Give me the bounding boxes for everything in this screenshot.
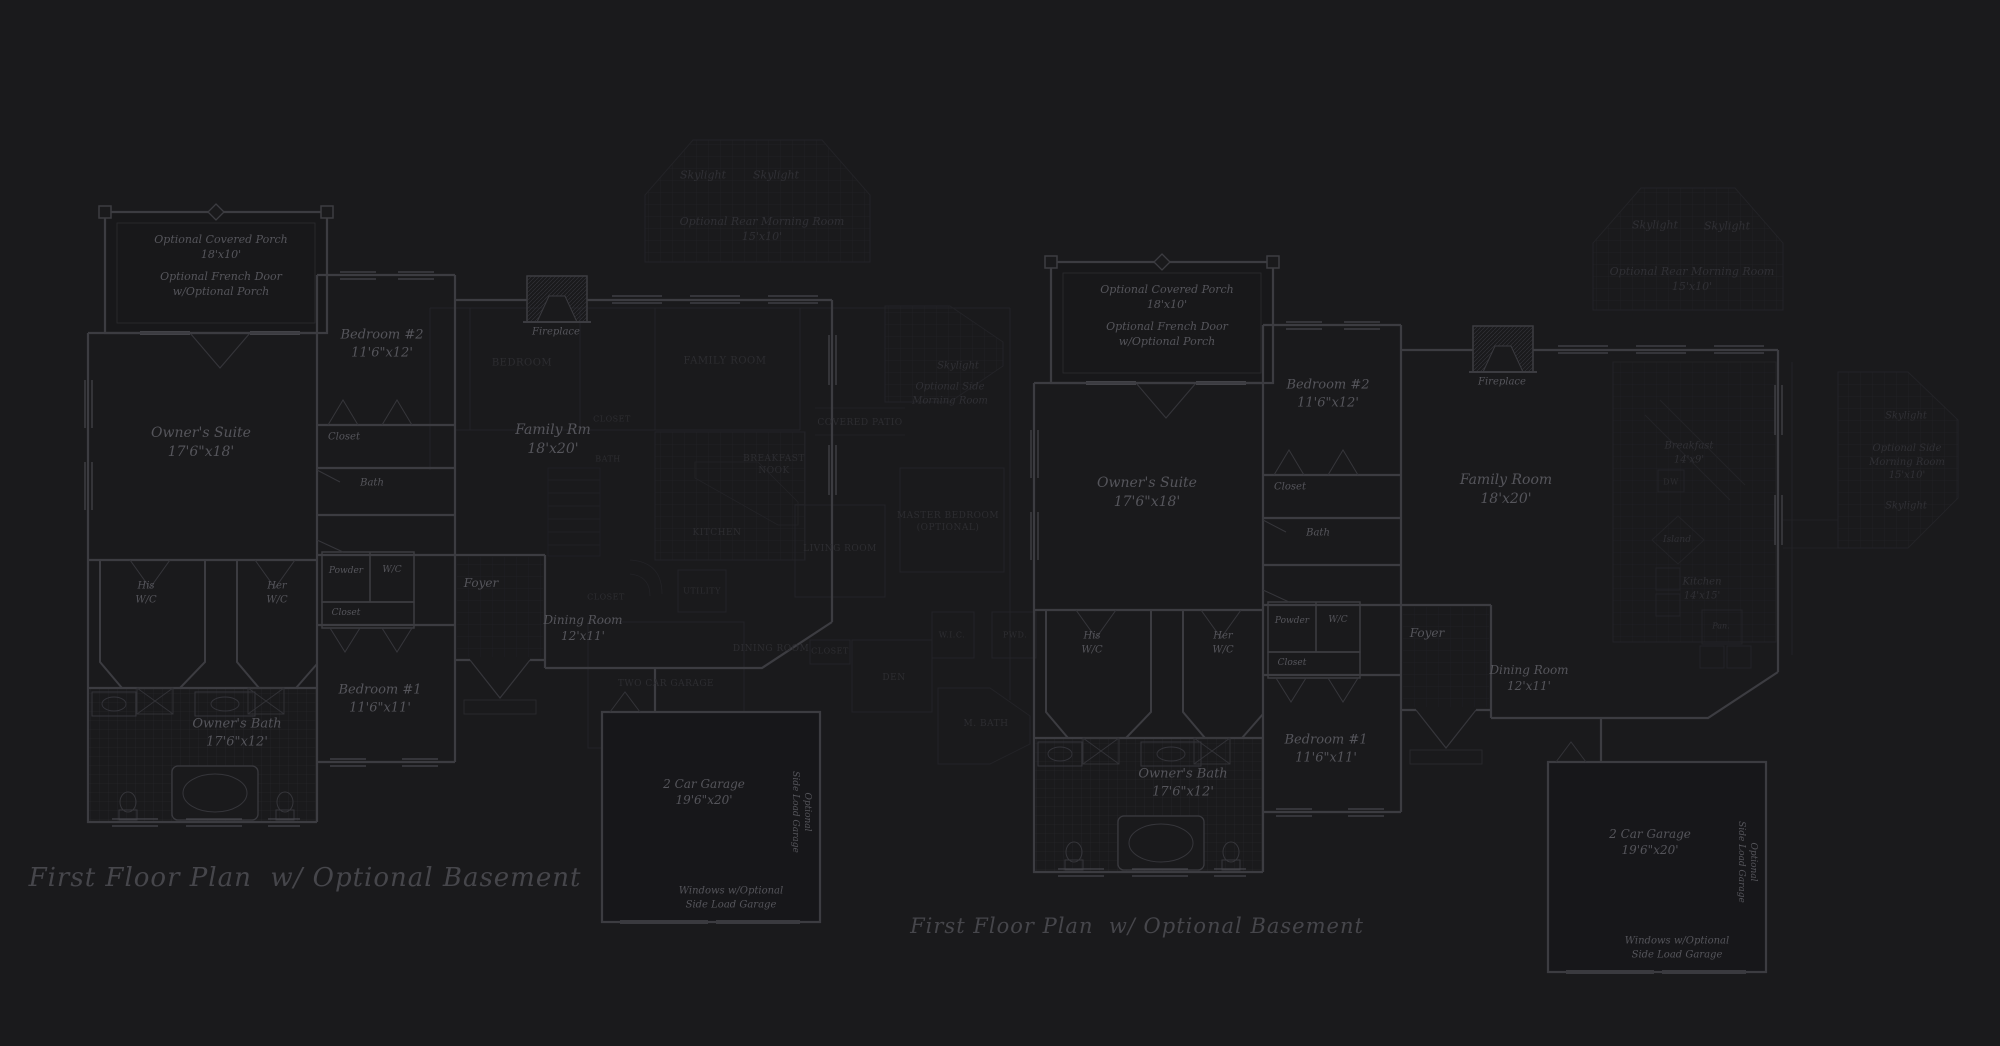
left-overlay-linework xyxy=(430,140,1036,764)
left-plan-caption: First Floor Plan w/ Optional Basement xyxy=(29,863,582,893)
left-plan-linework xyxy=(85,204,836,922)
right-plan-caption: First Floor Plan w/ Optional Basement xyxy=(910,914,1364,938)
floor-plan-sheet: First Floor Plan w/ Optional Basement Fi… xyxy=(0,0,2000,1046)
